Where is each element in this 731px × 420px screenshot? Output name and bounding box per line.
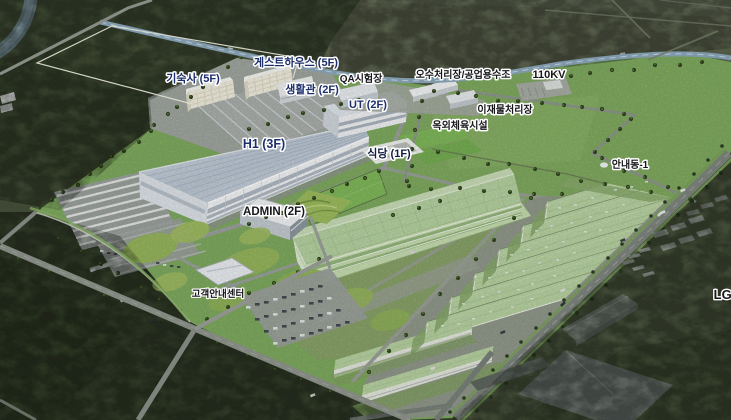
svg-text:ADMIN (2F): ADMIN (2F): [243, 206, 305, 218]
svg-text:기숙사 (5F): 기숙사 (5F): [166, 71, 220, 85]
svg-text:게스트하우스 (5F): 게스트하우스 (5F): [254, 55, 338, 69]
svg-text:오수처리장/공업용수조: 오수처리장/공업용수조: [416, 68, 511, 81]
svg-text:안내동-1: 안내동-1: [612, 158, 649, 171]
svg-text:LGE: LGE: [714, 287, 731, 302]
svg-text:H1 (3F): H1 (3F): [243, 137, 285, 151]
svg-text:QA시험장: QA시험장: [340, 72, 383, 85]
svg-text:생활관 (2F): 생활관 (2F): [285, 82, 339, 96]
svg-text:UT (2F): UT (2F): [349, 99, 387, 111]
svg-text:고객안내센터: 고객안내센터: [192, 288, 244, 300]
svg-text:식당 (1F): 식당 (1F): [367, 146, 411, 160]
svg-text:이재물처리장: 이재물처리장: [477, 103, 533, 116]
svg-text:옥외체육시설: 옥외체육시설: [432, 119, 487, 132]
svg-text:110KV: 110KV: [532, 69, 566, 81]
